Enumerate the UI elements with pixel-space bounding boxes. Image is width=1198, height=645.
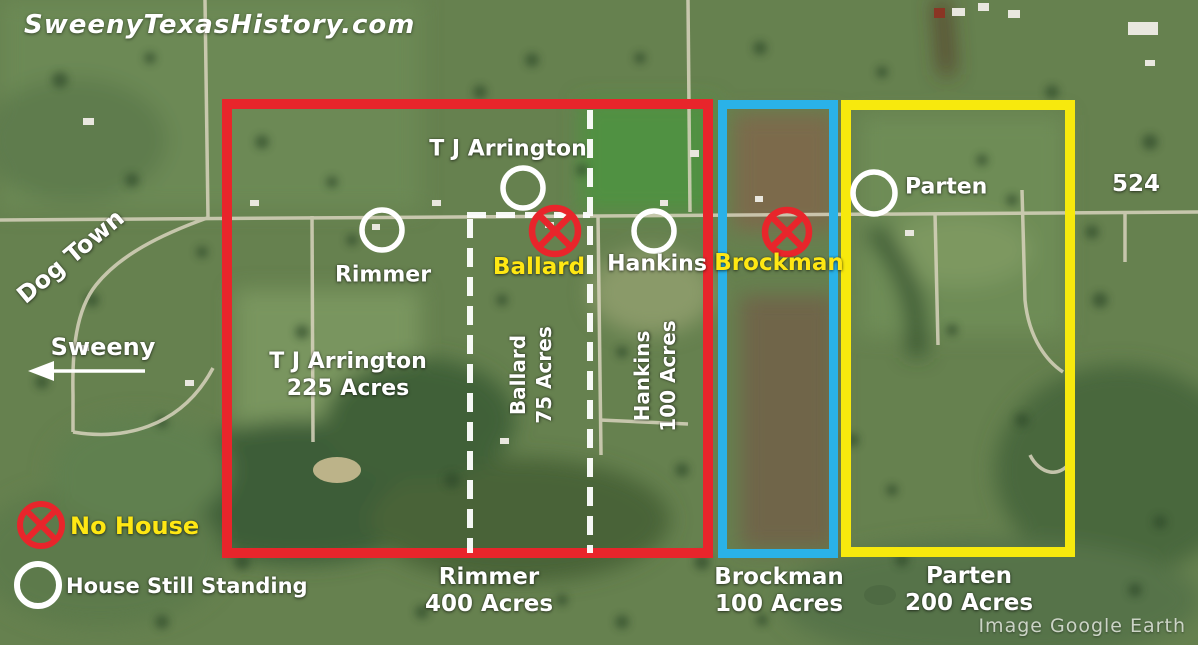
parcel-acreage: 400 Acres bbox=[425, 591, 553, 618]
parcel-owner: Hankins bbox=[629, 320, 655, 431]
parcel-owner: Brockman bbox=[714, 564, 843, 591]
sweeny-direction-arrow bbox=[28, 361, 145, 381]
parcel-owner: Ballard bbox=[505, 326, 531, 423]
sweeny-label: Sweeny bbox=[51, 334, 156, 362]
parcel-label-hankins-100: Hankins 100 Acres bbox=[629, 320, 681, 431]
legend-house-standing-icon bbox=[17, 564, 59, 606]
map-annotations bbox=[0, 0, 1198, 645]
parcel-owner: Parten bbox=[905, 563, 1033, 590]
house-label-tj-arrington: T J Arrington bbox=[429, 136, 586, 161]
annotated-aerial-map: SweenyTexasHistory.com T J Arrington Rim… bbox=[0, 0, 1198, 645]
house-marker-tj-arrington bbox=[503, 168, 543, 208]
house-label-parten: Parten bbox=[905, 174, 987, 199]
house-label-rimmer: Rimmer bbox=[335, 262, 431, 287]
house-marker-rimmer bbox=[362, 210, 402, 250]
legend-no-house-label: No House bbox=[70, 513, 199, 541]
house-label-brockman: Brockman bbox=[714, 250, 843, 276]
no-house-marker-brockman bbox=[765, 210, 809, 254]
house-label-ballard: Ballard bbox=[493, 254, 585, 280]
house-label-hankins: Hankins bbox=[607, 251, 707, 276]
parcel-label-parten-200: Parten 200 Acres bbox=[905, 563, 1033, 617]
parcel-label-tj-arrington-225: T J Arrington 225 Acres bbox=[269, 348, 426, 402]
highway-524-label: 524 bbox=[1112, 171, 1160, 197]
parcel-label-ballard-75: Ballard 75 Acres bbox=[505, 326, 557, 423]
legend-house-standing-label: House Still Standing bbox=[66, 574, 308, 598]
house-marker-parten bbox=[853, 172, 895, 214]
parcel-acreage: 200 Acres bbox=[905, 590, 1033, 617]
parcel-owner: Rimmer bbox=[425, 564, 553, 591]
parcel-label-rimmer-400: Rimmer 400 Acres bbox=[425, 564, 553, 618]
parcel-acreage: 75 Acres bbox=[531, 326, 557, 423]
legend-no-house-icon bbox=[20, 504, 62, 546]
parcel-label-brockman-100: Brockman 100 Acres bbox=[714, 564, 843, 618]
google-earth-credit: Image Google Earth bbox=[978, 615, 1186, 637]
house-marker-hankins bbox=[634, 211, 674, 251]
parcel-acreage: 100 Acres bbox=[655, 320, 681, 431]
parcel-acreage: 100 Acres bbox=[714, 591, 843, 618]
parcel-acreage: 225 Acres bbox=[269, 375, 426, 402]
parcel-owner: T J Arrington bbox=[269, 348, 426, 375]
site-watermark: SweenyTexasHistory.com bbox=[24, 10, 415, 40]
